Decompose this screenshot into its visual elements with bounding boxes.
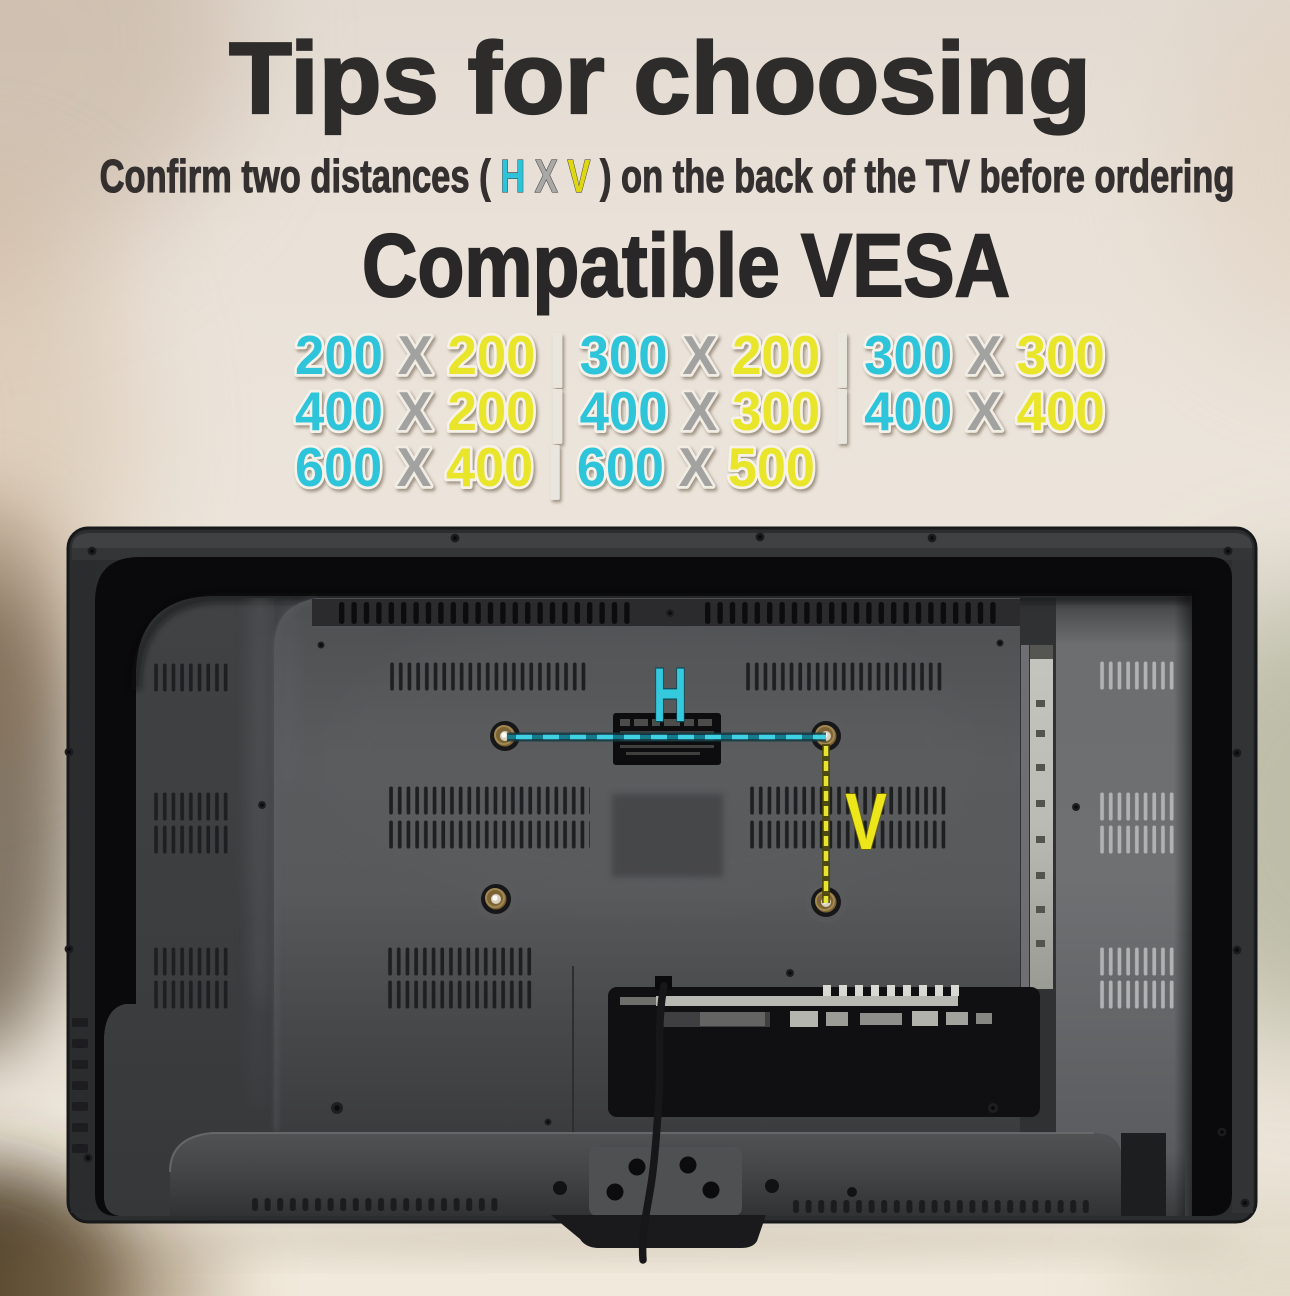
svg-text:200 X 200 | 300 X 200 | 300 X: 200 X 200 | 300 X 200 | 300 X 300 xyxy=(295,325,1105,387)
svg-text:V: V xyxy=(845,778,887,867)
svg-text:400 X 200 | 400 X 300 | 400 X: 400 X 200 | 400 X 300 | 400 X 400 xyxy=(295,381,1105,443)
svg-text:H: H xyxy=(653,654,687,738)
svg-text:600 X 400 | 600 X 500: 600 X 400 | 600 X 500 xyxy=(295,437,815,500)
svg-text:Compatible VESA: Compatible VESA xyxy=(362,216,1010,316)
svg-text:Tips for choosing: Tips for choosing xyxy=(229,22,1091,135)
svg-text:Confirm two distances ( H X V: Confirm two distances ( H X V ) on the b… xyxy=(100,150,1235,202)
